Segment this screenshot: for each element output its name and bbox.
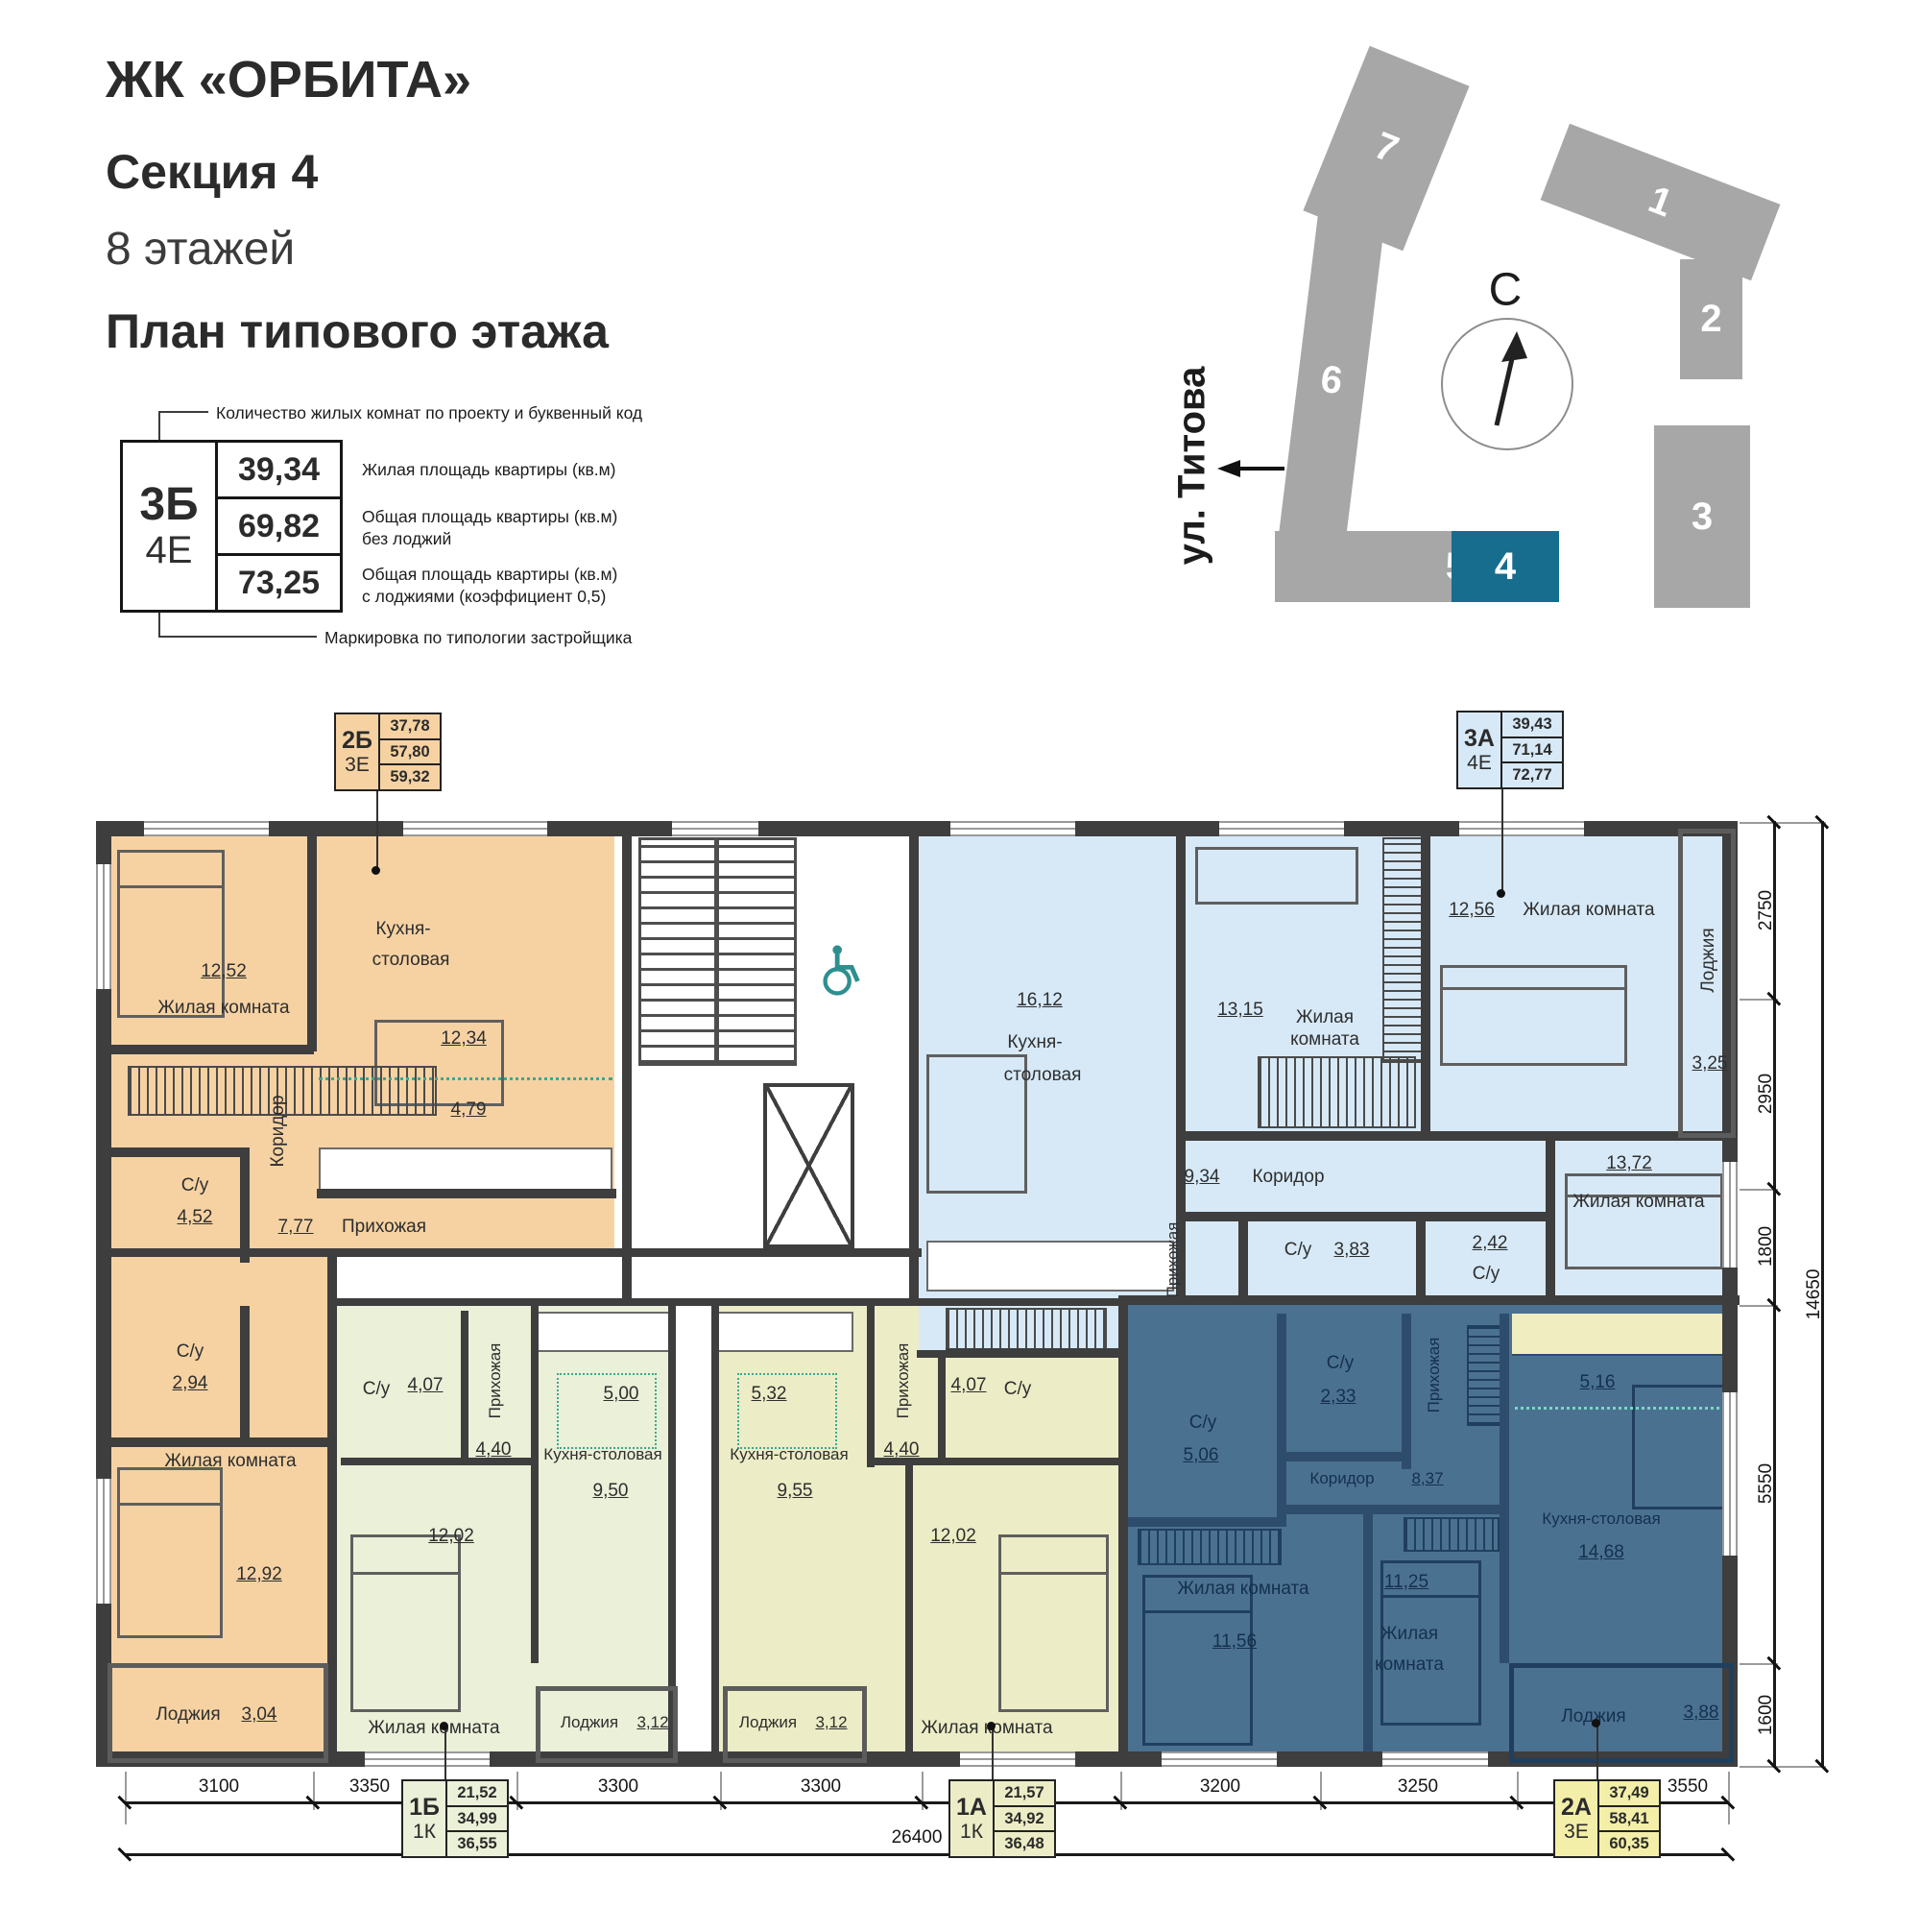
legend-sample-card: 3Б 4Е 39,34 69,82 73,25	[120, 440, 343, 613]
room-name: С/у	[1327, 1353, 1355, 1374]
room-name: Кухня-столовая	[730, 1445, 848, 1464]
room-area: 12,92	[236, 1564, 282, 1585]
site-building-1-label: 1	[1643, 179, 1678, 227]
window	[144, 821, 269, 836]
room-area: 12,34	[441, 1028, 487, 1050]
card-leader	[992, 1728, 994, 1779]
card-code: 1А	[956, 1796, 987, 1820]
card-code: 2Б	[342, 729, 372, 753]
card-values: 37,78 57,80 59,32	[380, 714, 440, 789]
site-building-2-label: 2	[1700, 298, 1721, 341]
room-area: 4,40	[476, 1439, 512, 1461]
legend-leader-top-h	[158, 411, 208, 413]
apartment-card-2a: 2А 3Е 37,49 58,41 60,35	[1553, 1779, 1661, 1858]
card-leader	[376, 791, 378, 872]
window	[1722, 1162, 1738, 1268]
compass-north-label: С	[1489, 264, 1523, 317]
room-area: 9,55	[778, 1481, 813, 1502]
legend-callout-bottom: Маркировка по типологии застройщика	[324, 627, 632, 649]
dim-label: 3200	[1200, 1776, 1240, 1798]
legend-note-total: Общая площадь квартиры (кв.м) с лоджиями…	[362, 564, 617, 608]
card-values: 21,57 34,92 36,48	[995, 1781, 1054, 1856]
room-name: Жилая комната	[1262, 1007, 1387, 1051]
room-name: Кухня-столовая	[1542, 1509, 1660, 1529]
room-name: С/у	[363, 1379, 391, 1400]
legend-type-code: 4Е	[146, 529, 193, 571]
dim-ext	[125, 1772, 127, 1824]
street-arrow-icon	[1217, 460, 1240, 477]
floors-subtitle: 8 этажей	[106, 223, 295, 276]
legend-area-no-loggia: 69,82	[218, 499, 340, 556]
card-leader-dot	[372, 866, 380, 875]
room-name: Прихожая	[894, 1343, 913, 1419]
card-leader-dot	[987, 1722, 996, 1730]
card-values: 21,52 34,99 36,55	[447, 1781, 507, 1856]
room-name: Жилая комната	[1177, 1579, 1308, 1600]
room-area: 12,02	[428, 1526, 474, 1547]
room-name: Коридор	[1252, 1167, 1324, 1188]
room-area: 2,33	[1321, 1387, 1356, 1408]
card-living: 39,43	[1502, 712, 1562, 738]
room-name: столовая	[372, 950, 450, 971]
room-area: 4,40	[884, 1439, 920, 1461]
room-area: 13,15	[1217, 1000, 1263, 1021]
site-building-4-highlighted: 4	[1452, 531, 1559, 602]
room-area: 8,37	[1411, 1469, 1443, 1488]
room-area: 9,34	[1185, 1167, 1220, 1188]
room-area: 2,42	[1473, 1233, 1508, 1254]
room-name: столовая	[1004, 1065, 1082, 1086]
legend-room-code: 3Б	[139, 481, 198, 529]
card-code: 1Б	[409, 1796, 440, 1820]
window	[950, 821, 1075, 836]
dim-label: 3550	[1668, 1776, 1708, 1798]
card-leader-dot	[1592, 1719, 1600, 1727]
site-building-3: 3	[1654, 425, 1750, 608]
window	[96, 864, 111, 989]
room-area: 5,16	[1580, 1372, 1616, 1393]
room-area: 5,00	[604, 1384, 639, 1405]
legend-note-total-l2: с лоджиями (коэффициент 0,5)	[362, 587, 606, 606]
room-area: 13,72	[1606, 1153, 1652, 1174]
card-code-cell: 2А 3Е	[1555, 1781, 1599, 1856]
site-building-3-label: 3	[1692, 495, 1713, 539]
window	[1162, 1751, 1277, 1767]
apartment-card-3a: 3А 4Е 39,43 71,14 72,77	[1456, 711, 1564, 789]
dim-label: 3250	[1398, 1776, 1438, 1798]
room-name: Лоджия	[1698, 928, 1719, 992]
window	[672, 821, 758, 836]
card-code-cell: 1А 1К	[950, 1781, 995, 1856]
card-values: 37,49 58,41 60,35	[1599, 1781, 1659, 1856]
room-area: 3,25	[1692, 1053, 1728, 1075]
card-no-loggia: 34,99	[447, 1807, 507, 1833]
window	[96, 1479, 111, 1604]
card-living: 21,52	[447, 1781, 507, 1807]
project-title: ЖК «ОРБИТА»	[106, 50, 471, 109]
site-building-6-label: 6	[1318, 357, 1345, 402]
room-name: Кухня-	[1007, 1032, 1062, 1053]
dim-label: 1800	[1756, 1226, 1777, 1267]
dim-label: 3100	[199, 1776, 239, 1798]
dim-ext	[1728, 1772, 1730, 1824]
room-name: Лоджия	[739, 1713, 797, 1732]
card-leader	[1596, 1727, 1598, 1779]
card-code-cell: 2Б 3Е	[336, 714, 380, 789]
legend-note-no-loggia-l2: без лоджий	[362, 529, 451, 548]
room-name: С/у	[181, 1175, 209, 1196]
card-code-cell: 1Б 1К	[403, 1781, 447, 1856]
dim-label: 2950	[1756, 1074, 1777, 1114]
room-name: комната	[1375, 1654, 1444, 1676]
room-name: С/у	[177, 1341, 204, 1363]
site-building-7-label: 7	[1368, 124, 1404, 172]
section-title: Секция 4	[106, 144, 318, 200]
dim-label: 1600	[1756, 1695, 1777, 1735]
room-name: Прихожая	[486, 1343, 505, 1419]
room-area: 16,12	[1017, 990, 1063, 1011]
dim-line-bottom	[125, 1801, 1728, 1804]
room-area: 3,12	[815, 1713, 847, 1732]
room-name: Жилая комната	[164, 1451, 296, 1472]
room-name: Прихожая	[342, 1217, 426, 1238]
room-name: С/у	[1004, 1379, 1032, 1400]
room-area: 7,77	[278, 1217, 314, 1238]
card-type: 1К	[960, 1822, 983, 1842]
room-area: 14,68	[1578, 1542, 1624, 1563]
room-area: 4,07	[408, 1375, 444, 1396]
card-total: 36,48	[995, 1832, 1054, 1856]
room-name: Кухня-столовая	[543, 1445, 661, 1464]
window	[960, 1751, 1075, 1767]
room-name: Жилая комната	[157, 998, 289, 1019]
room-name: Прихожая	[1164, 1222, 1183, 1298]
room-area: 12,02	[930, 1526, 976, 1547]
window	[403, 821, 547, 836]
card-type: 3Е	[1564, 1822, 1589, 1842]
room-area: 3,83	[1334, 1240, 1370, 1261]
legend-leader-bottom-h	[158, 636, 317, 638]
apartment-card-2b: 2Б 3Е 37,78 57,80 59,32	[334, 712, 442, 791]
dim-ext	[1740, 822, 1826, 824]
room-name: Жилая комната	[368, 1718, 499, 1739]
dim-label: 3350	[349, 1776, 390, 1798]
building-outline	[96, 821, 1738, 1767]
room-area: 9,50	[593, 1481, 629, 1502]
card-no-loggia: 58,41	[1599, 1807, 1659, 1833]
room-area: 5,06	[1184, 1445, 1219, 1466]
window	[1382, 1751, 1488, 1767]
legend-living-area: 39,34	[218, 443, 340, 499]
legend-callout-top: Количество жилых комнат по проекту и бук…	[216, 402, 642, 424]
legend-values: 39,34 69,82 73,25	[218, 443, 340, 610]
card-total: 36,55	[447, 1832, 507, 1856]
room-name: С/у	[1473, 1264, 1500, 1285]
card-type: 3Е	[345, 755, 370, 775]
card-living: 37,78	[380, 714, 440, 740]
card-leader	[444, 1728, 446, 1779]
room-name: Коридор	[1309, 1469, 1374, 1488]
room-area: 2,94	[173, 1373, 208, 1394]
legend-note-total-l1: Общая площадь квартиры (кв.м)	[362, 565, 617, 584]
room-name: Жилая комната	[1572, 1192, 1704, 1213]
card-code: 3А	[1464, 727, 1495, 751]
window	[365, 1751, 490, 1767]
room-area: 4,52	[178, 1207, 213, 1228]
room-area: 4,07	[951, 1375, 987, 1396]
street-arrow-shaft	[1238, 467, 1284, 471]
room-name: Кухня-	[375, 919, 430, 940]
apartment-card-1b: 1Б 1К 21,52 34,99 36,55	[401, 1779, 509, 1858]
dim-label: 5550	[1756, 1463, 1777, 1504]
card-leader	[1501, 789, 1503, 893]
street-label: ул. Титова	[1171, 367, 1214, 566]
dim-ext	[1740, 1766, 1826, 1768]
apartment-card-1a: 1А 1К 21,57 34,92 36,48	[948, 1779, 1056, 1858]
room-area: 3,88	[1684, 1703, 1719, 1724]
compass-needle-icon	[1441, 318, 1570, 447]
card-total: 60,35	[1599, 1832, 1659, 1856]
room-area: 11,25	[1384, 1572, 1428, 1593]
room-area: 3,12	[636, 1713, 668, 1732]
legend-leader-bottom-v	[158, 613, 160, 638]
window	[1459, 821, 1584, 836]
plan-title: План типового этажа	[106, 303, 609, 359]
dim-label-total: 14650	[1804, 1269, 1825, 1320]
site-building-2: 2	[1680, 259, 1742, 379]
legend-note-no-loggia-l1: Общая площадь квартиры (кв.м)	[362, 507, 617, 526]
card-no-loggia: 57,80	[380, 740, 440, 766]
room-area: 11,56	[1212, 1631, 1257, 1653]
room-name: Жилая комната	[1523, 900, 1654, 921]
card-leader-dot	[440, 1722, 448, 1730]
card-values: 39,43 71,14 72,77	[1502, 712, 1562, 787]
site-building-4-label: 4	[1495, 545, 1516, 589]
dim-label: 3300	[801, 1776, 841, 1798]
room-area: 3,04	[242, 1704, 277, 1726]
legend-code-cell: 3Б 4Е	[123, 443, 218, 610]
room-name: Жилая	[1380, 1624, 1438, 1645]
card-living: 37,49	[1599, 1781, 1659, 1807]
legend-note-living: Жилая площадь квартиры (кв.м)	[362, 459, 615, 481]
legend-note-no-loggia: Общая площадь квартиры (кв.м) без лоджий	[362, 506, 617, 550]
room-area: 4,79	[451, 1099, 487, 1121]
dim-label-total: 26400	[892, 1827, 943, 1848]
window	[1219, 821, 1344, 836]
room-name: С/у	[1189, 1413, 1217, 1434]
card-total: 72,77	[1502, 763, 1562, 787]
card-total: 59,32	[380, 765, 440, 789]
room-area: 5,32	[752, 1384, 787, 1405]
room-name: С/у	[1284, 1240, 1312, 1261]
legend-leader-top-v	[158, 411, 160, 440]
dim-label: 3300	[598, 1776, 638, 1798]
site-building-1: 1	[1541, 124, 1781, 281]
card-leader-dot	[1497, 889, 1505, 898]
room-area: 12,52	[201, 961, 247, 982]
card-code-cell: 3А 4Е	[1458, 712, 1502, 787]
card-type: 1К	[413, 1822, 436, 1842]
room-name: Лоджия	[156, 1704, 220, 1726]
dim-line-right	[1773, 821, 1776, 1767]
room-area: 12,56	[1449, 900, 1495, 921]
card-no-loggia: 71,14	[1502, 738, 1562, 764]
room-name: Лоджия	[561, 1713, 618, 1732]
site-building-6: 6	[1277, 201, 1386, 560]
legend-area-total: 73,25	[218, 556, 340, 610]
dim-line-bottom-total	[125, 1853, 1728, 1856]
floor-plan-page: ЖК «ОРБИТА» Секция 4 8 этажей План типов…	[0, 0, 1920, 1932]
card-code: 2А	[1561, 1796, 1592, 1820]
card-type: 4Е	[1467, 753, 1492, 773]
window	[1722, 1392, 1738, 1556]
dim-label: 2750	[1756, 890, 1777, 930]
card-no-loggia: 34,92	[995, 1807, 1054, 1833]
card-living: 21,57	[995, 1781, 1054, 1807]
room-name: Прихожая	[1425, 1338, 1444, 1413]
room-name: Коридор	[268, 1095, 289, 1167]
